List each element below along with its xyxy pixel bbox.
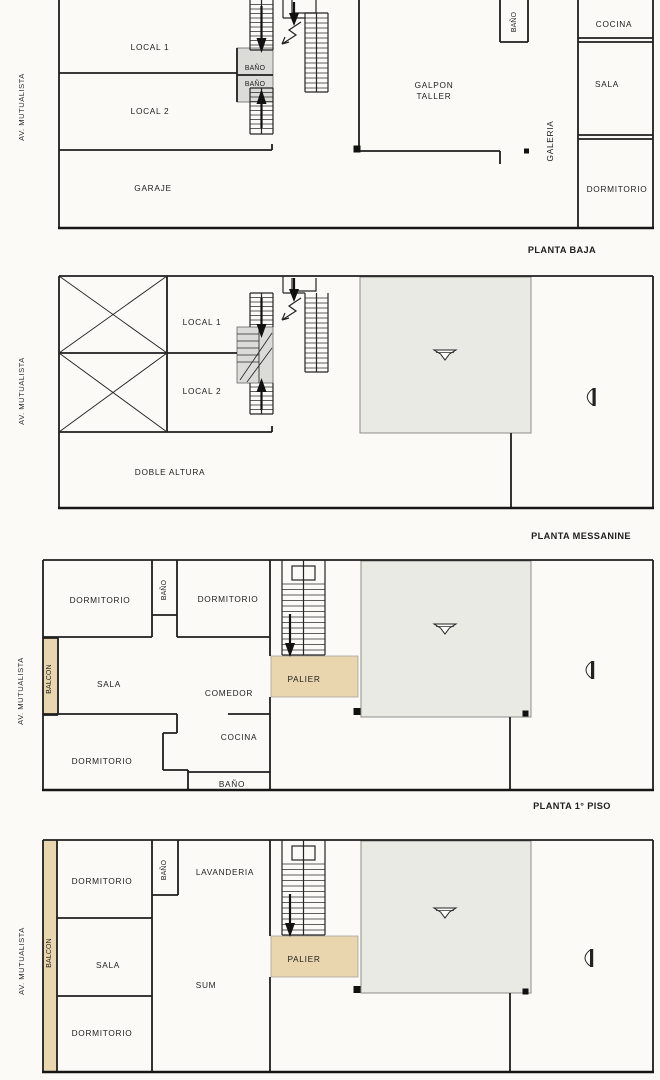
room-label-palier: PALIER xyxy=(287,674,320,684)
room-label-sala: SALA xyxy=(96,960,120,970)
plan-title-planta-messanine: PLANTA MESSANINE xyxy=(531,531,631,541)
room-label-bano-lower: BAÑO xyxy=(245,79,266,88)
floor-plan-planta-messanine: AV. MUTUALISTA LOCAL 1 LOCAL 2 DOBLE ALT… xyxy=(17,276,654,541)
room-label-bano2: BAÑO xyxy=(219,779,245,789)
room-label-doble-altura: DOBLE ALTURA xyxy=(135,467,206,477)
floor-plan-planta-baja: AV. MUTUALISTA LOCAL 1 LOCAL 2 GARAJE BA… xyxy=(17,0,654,255)
room-label-bano-upper: BAÑO xyxy=(245,63,266,72)
floor-plans-drawing: AV. MUTUALISTA LOCAL 1 LOCAL 2 GARAJE BA… xyxy=(0,0,660,1080)
street-label: AV. MUTUALISTA xyxy=(17,927,26,995)
double-height-x-icon xyxy=(59,276,167,432)
room-label-garaje: GARAJE xyxy=(134,183,171,193)
room-label-lavanderia: LAVANDERIA xyxy=(196,867,254,877)
street-label: AV. MUTUALISTA xyxy=(16,657,25,725)
plan-title-planta-baja: PLANTA BAJA xyxy=(528,245,596,255)
column-marker xyxy=(354,146,361,153)
street-label: AV. MUTUALISTA xyxy=(17,357,26,425)
floor-plan-top-floor: AV. MUTUALISTA DORMITORIO BAÑO LAVANDERI… xyxy=(17,840,654,1072)
floor-plan-planta-1-piso: AV. MUTUALISTA DORMITORIO BAÑO DORMITORI… xyxy=(16,560,654,811)
stairs-secondary xyxy=(282,276,328,372)
room-label-cocina: COCINA xyxy=(221,732,257,742)
room-label-balcon: BALCON xyxy=(46,664,53,694)
room-label-local1: LOCAL 1 xyxy=(183,317,222,327)
room-label-dormitorio3: DORMITORIO xyxy=(72,756,133,766)
room-label-sum: SUM xyxy=(196,980,217,990)
plan-title-planta-1-piso: PLANTA 1° PISO xyxy=(533,801,611,811)
room-label-sala: SALA xyxy=(97,679,121,689)
room-label-galpon-1: GALPON xyxy=(415,80,454,90)
upper-unit-area xyxy=(361,561,531,717)
stair-break-arrow-icon xyxy=(282,298,301,320)
room-label-dormitorio2: DORMITORIO xyxy=(72,1028,133,1038)
column-marker xyxy=(524,149,529,154)
stairs xyxy=(282,560,325,657)
room-label-dormitorio2: DORMITORIO xyxy=(198,594,259,604)
column-marker xyxy=(354,708,361,715)
column-marker xyxy=(523,989,529,995)
room-label-local2: LOCAL 2 xyxy=(183,386,222,396)
room-label-local1: LOCAL 1 xyxy=(131,42,170,52)
room-label-bano1: BAÑO xyxy=(159,579,168,600)
room-label-sala: SALA xyxy=(595,79,619,89)
door-swing-icon xyxy=(587,388,595,406)
stairs-secondary xyxy=(282,0,328,92)
room-label-bano: BAÑO xyxy=(159,859,168,880)
stair-break-arrow-icon xyxy=(282,22,301,44)
door-swing-icon xyxy=(586,661,594,679)
room-label-dormitorio: DORMITORIO xyxy=(587,184,648,194)
door-swing-icon xyxy=(585,949,593,967)
room-label-comedor: COMEDOR xyxy=(205,688,253,698)
room-label-palier: PALIER xyxy=(287,954,320,964)
room-label-galpon-2: TALLER xyxy=(417,91,452,101)
room-label-dormitorio1: DORMITORIO xyxy=(72,876,133,886)
room-label-bano-galpon: BAÑO xyxy=(509,11,518,32)
stairs xyxy=(282,840,325,937)
room-label-balcon: BALCON xyxy=(46,938,53,968)
room-label-dormitorio1: DORMITORIO xyxy=(70,595,131,605)
column-marker xyxy=(354,986,361,993)
room-label-cocina: COCINA xyxy=(596,19,632,29)
room-label-galeria: GALERIA xyxy=(545,121,555,162)
room-label-local2: LOCAL 2 xyxy=(131,106,170,116)
floor-plan-sheet: AV. MUTUALISTA LOCAL 1 LOCAL 2 GARAJE BA… xyxy=(0,0,660,1080)
column-marker xyxy=(523,711,529,717)
street-label: AV. MUTUALISTA xyxy=(17,73,26,141)
